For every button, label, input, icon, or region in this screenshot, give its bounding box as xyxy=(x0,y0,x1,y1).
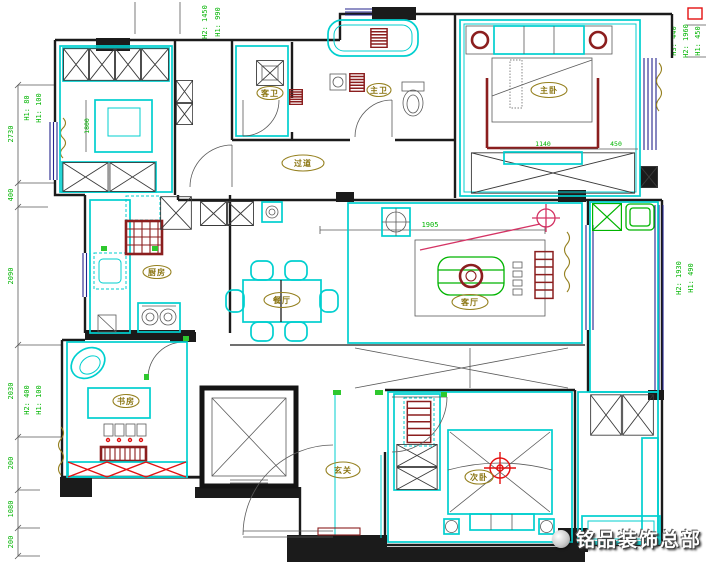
room-label-guest-bath: 客卫 xyxy=(260,88,279,98)
room-label-master-bedroom: 主卧 xyxy=(540,85,558,95)
height-left-top-b: H1: 100 xyxy=(35,93,43,123)
elevator-shaft xyxy=(202,388,296,486)
height-left-mid-a: H2: 400 xyxy=(23,385,31,415)
vanity-grille-icon xyxy=(350,74,364,92)
dim-left-2730: 2730 xyxy=(7,126,15,143)
vent-grille-icon xyxy=(290,90,303,105)
bath-grille-icon xyxy=(371,29,387,48)
room-label-kitchen: 厨房 xyxy=(148,267,166,277)
height-top-b: H1: 990 xyxy=(214,7,222,37)
room-label-study: 书房 xyxy=(117,396,135,406)
room-label-bedroom2: 次卧 xyxy=(470,472,488,482)
dim-1140: 1140 xyxy=(535,140,551,148)
room-label-living: 客厅 xyxy=(460,297,479,307)
dim-left-2090: 2090 xyxy=(7,268,15,285)
dim-1800: 1800 xyxy=(83,118,91,134)
dim-left-200a: 200 xyxy=(7,457,15,470)
height-left-mid-b: H1: 100 xyxy=(35,385,43,415)
room-label-dining: 餐厅 xyxy=(272,295,291,305)
dim-left-2030: 2030 xyxy=(7,383,15,400)
room-label-master-bath: 主卫 xyxy=(370,85,388,95)
floor-plan-canvas: 2730 400 2090 2030 200 1080 200 H1: 80 H… xyxy=(0,0,708,566)
height-right-mid-a: H2: 1930 xyxy=(675,261,683,295)
height-left-top-a: H1: 80 xyxy=(23,95,31,120)
dim-left-400: 400 xyxy=(7,189,15,202)
height-right-b: H2: 1960 xyxy=(682,24,690,58)
room-label-entry: 玄关 xyxy=(334,465,352,475)
floor-plan-drawing: 2730 400 2090 2030 200 1080 200 H1: 80 H… xyxy=(0,0,708,566)
height-right-c: H1: 450 xyxy=(694,26,702,56)
dim-left-1080: 1080 xyxy=(7,501,15,518)
dim-left-200b: 200 xyxy=(7,536,15,549)
height-top-a: H2: 1450 xyxy=(201,5,209,39)
height-right-mid-b: H1: 490 xyxy=(687,263,695,293)
room-label-corridor: 过道 xyxy=(294,158,312,168)
dim-450: 450 xyxy=(610,140,622,148)
dim-1905: 1905 xyxy=(422,221,439,229)
